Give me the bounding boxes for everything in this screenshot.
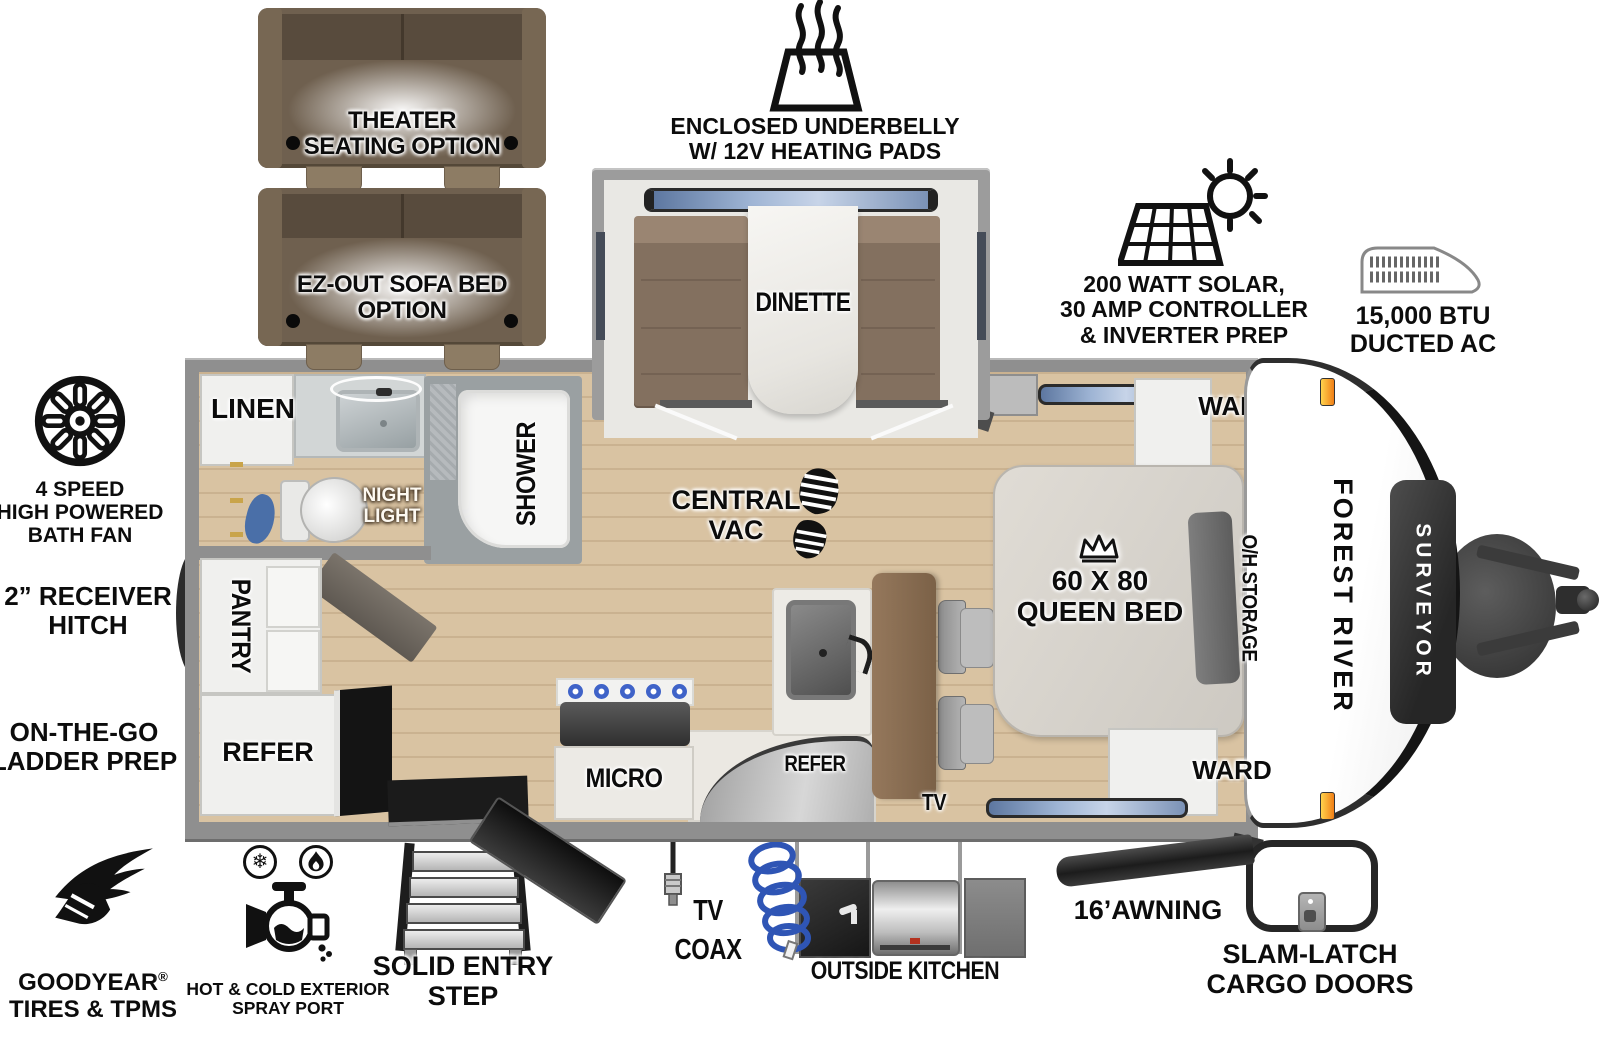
refer-rear-door: [334, 685, 392, 816]
burner: [646, 684, 661, 699]
cargo-doors-label: SLAM-LATCH CARGO DOORS: [1206, 940, 1413, 999]
cargo-door-latch: [1298, 892, 1326, 932]
spray-port-faucet-icon: [242, 880, 338, 962]
bath-fan-label: 4 SPEED HIGH POWERED BATH FAN: [0, 478, 163, 547]
slide-wall-window: [596, 232, 605, 340]
pantry-label: PANTRY: [225, 579, 255, 674]
central-vac-label: CENTRAL VAC: [672, 486, 801, 545]
coiled-hose-graphic: [742, 842, 816, 962]
snowflake-icon: ❄: [243, 845, 277, 879]
night-light-label: NIGHT LIGHT: [362, 486, 421, 528]
ladder-prep-label: ON-THE-GO LADDER PREP: [0, 718, 177, 775]
burner: [620, 684, 635, 699]
slide-rail: [856, 400, 948, 408]
dinette-label: DINETTE: [755, 288, 850, 318]
registered-mark: ®: [158, 969, 168, 984]
towel-hook: [230, 462, 243, 467]
goodyear-wingfoot-icon: [45, 836, 157, 930]
pillow: [1188, 511, 1241, 685]
theater-seating-option-graphic: [258, 8, 546, 192]
goodyear-line2: TIRES & TPMS: [9, 997, 177, 1023]
marker-light: [1320, 792, 1335, 820]
receiver-hitch-label: 2” RECEIVER HITCH: [4, 582, 172, 639]
chair-seat: [960, 704, 994, 764]
ceiling-light: [330, 376, 422, 402]
refer-rear-label: REFER: [222, 738, 314, 768]
goodyear-brand: GOODYEAR: [18, 969, 158, 996]
surveyor-logo: SURVEYOR: [1411, 523, 1434, 680]
linen-label: LINEN: [211, 394, 295, 425]
burner: [672, 684, 687, 699]
dining-table: [872, 573, 936, 799]
pantry-cabinet: [200, 558, 322, 694]
goodyear-label: GOODYEAR® TIRES & TPMS: [9, 944, 177, 1048]
spray-port-label: HOT & COLD EXTERIOR SPRAY PORT: [186, 980, 389, 1019]
refer-kitchen-label: REFER: [784, 752, 845, 776]
marker-light: [1320, 378, 1335, 406]
slide-rail: [660, 400, 752, 408]
towel-hook: [230, 498, 243, 503]
dinette-bench-left: [634, 216, 748, 408]
underbelly-label: ENCLOSED UNDERBELLY W/ 12V HEATING PADS: [670, 114, 959, 165]
crown-icon: [1076, 532, 1122, 564]
queen-bed-label: 60 X 80 QUEEN BED: [1017, 566, 1183, 628]
flame-icon: [299, 845, 333, 879]
outside-kitchen-water-heater: [872, 880, 960, 956]
theater-seating-option-label: THEATER SEATING OPTION: [304, 108, 501, 161]
oh-storage-label: O/H STORAGE: [1237, 534, 1260, 661]
outside-kitchen-cabinet: [964, 878, 1026, 958]
floorplan-diagram: FOREST RIVER SURVEYOR THEATER SEATING OP…: [0, 0, 1600, 1048]
micro-label: MICRO: [586, 764, 663, 794]
entry-step-label: SOLID ENTRY STEP: [373, 952, 554, 1011]
bath-fan-icon: [33, 374, 127, 468]
ward-bottom-label: WARD: [1192, 756, 1271, 785]
solar-label: 200 WATT SOLAR, 30 AMP CONTROLLER & INVE…: [1060, 272, 1308, 348]
awning-graphic: [1055, 834, 1255, 888]
ac-unit-icon: [1356, 240, 1486, 298]
cooktop: [560, 702, 690, 746]
awning-label: 16’AWNING: [1074, 896, 1223, 926]
chair-seat: [960, 608, 994, 668]
slide-wall-window: [977, 232, 986, 340]
ez-out-sofa-bed-option-label: EZ-OUT SOFA BED OPTION: [297, 272, 507, 325]
burner: [594, 684, 609, 699]
dinette-bench-right: [856, 216, 940, 408]
hitch-jack-knob: [1577, 589, 1599, 611]
burner: [568, 684, 583, 699]
bedroom-window-bottom: [986, 798, 1188, 818]
tv-coax-label: TV COAX: [674, 892, 741, 970]
heating-pads-icon: [756, 0, 876, 115]
tv-label: TV: [922, 790, 946, 815]
forest-river-logo: FOREST RIVER: [1327, 478, 1357, 714]
ac-label: 15,000 BTU DUCTED AC: [1350, 303, 1496, 358]
towel-hook: [230, 532, 243, 537]
solar-panel-icon: [1118, 158, 1268, 273]
shower-enclosure: [424, 376, 582, 564]
shower-label: SHOWER: [512, 422, 542, 526]
outside-kitchen-label: OUTSIDE KITCHEN: [811, 958, 999, 986]
